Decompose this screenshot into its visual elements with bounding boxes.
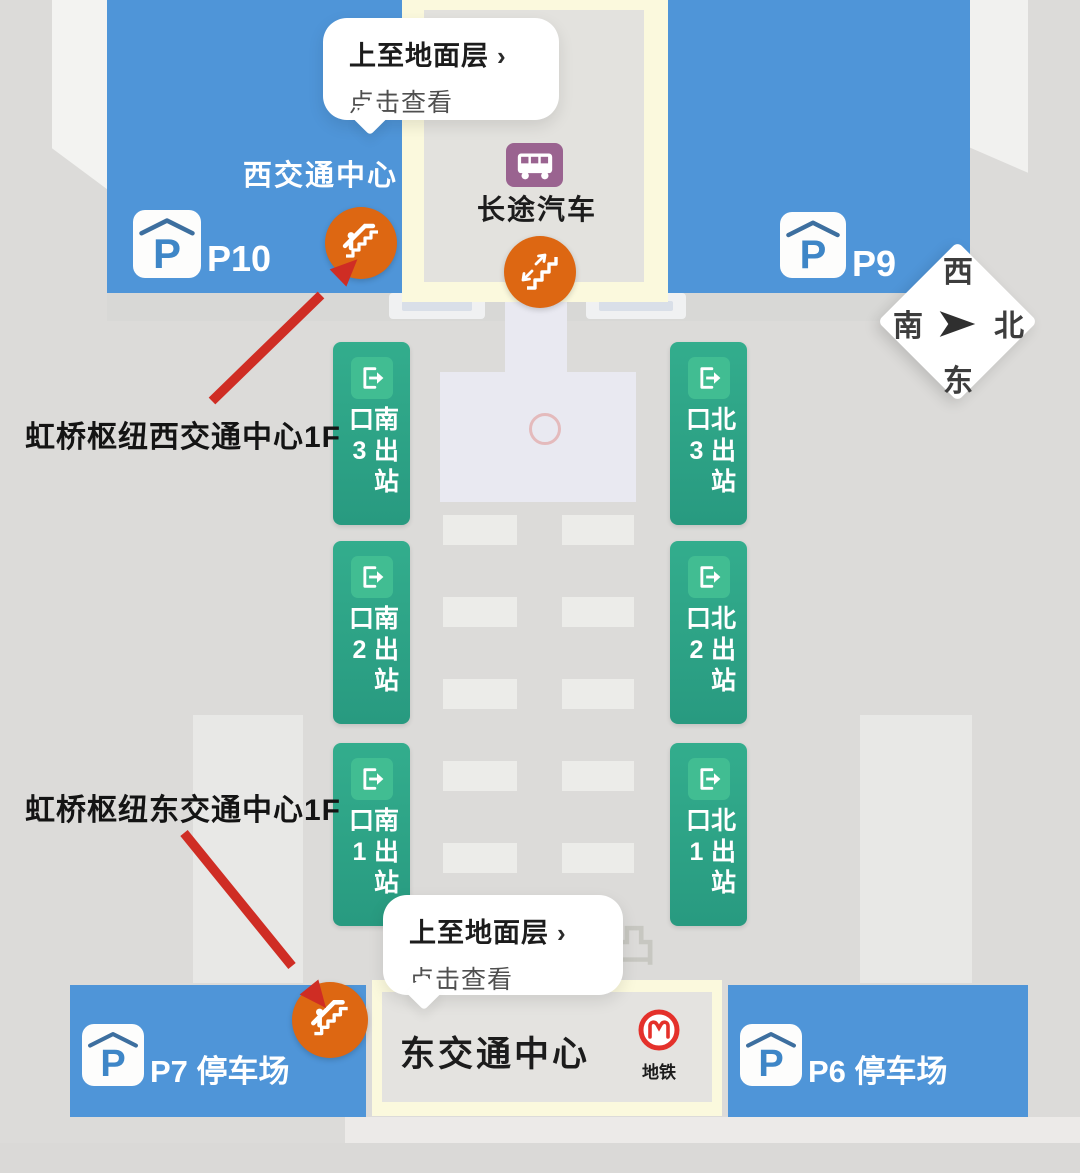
exit-label: 南出站口2	[347, 605, 397, 718]
bottom-light-band	[345, 1117, 1080, 1143]
p9-parking-icon: P	[780, 212, 846, 278]
exit-sign-north-1: 北出站口1	[670, 743, 747, 926]
compass-south: 南	[893, 301, 923, 345]
exit-icon	[688, 357, 730, 399]
building-leg-right	[860, 715, 972, 983]
p7-parking-icon: P	[82, 1024, 144, 1086]
compass-north: 北	[994, 301, 1024, 345]
metro-logo-icon	[637, 1008, 681, 1052]
tooltip-ground-floor-bottom[interactable]: 上至地面层› 点击查看	[383, 895, 623, 995]
platform-rows-left	[443, 515, 517, 915]
metro-ghost-ring-icon	[529, 413, 561, 445]
exit-icon	[351, 556, 393, 598]
exit-sign-north-3: 北出站口3	[670, 342, 747, 525]
exit-sign-south-2: 南出站口2	[333, 541, 410, 724]
parking-p-letter: P	[758, 1045, 783, 1083]
east-escalator-icon[interactable]	[292, 982, 368, 1058]
bottom-strip	[0, 1143, 1080, 1173]
hongqiao-hub-floor-map: 西交通中心 P P10 长途汽车	[0, 0, 1080, 1173]
annotation-east-center: 虹桥枢纽东交通中心1F	[25, 785, 341, 829]
ramp-shape-left	[52, 0, 107, 195]
p10-parking-icon: P	[133, 210, 201, 278]
compass-east: 东	[943, 356, 973, 400]
stairs-marker-icon[interactable]	[504, 236, 576, 308]
exit-sign-north-2: 北出站口2	[670, 541, 747, 724]
exit-label: 北出站口2	[684, 605, 734, 718]
west-center-label: 西交通中心	[238, 152, 398, 194]
station-hall-block	[440, 372, 636, 502]
p10-label: P10	[207, 238, 271, 280]
compass-west: 西	[943, 247, 973, 291]
chevron-right-icon: ›	[557, 918, 567, 948]
platform-rows-right	[562, 515, 634, 915]
compass: 西 南 北 东	[878, 242, 1038, 402]
p7-label: P7 停车场	[150, 1046, 290, 1091]
compass-arrow-icon	[938, 310, 978, 338]
exit-label: 北出站口3	[684, 406, 734, 519]
exit-sign-south-3: 南出站口3	[333, 342, 410, 525]
west-escalator-icon[interactable]	[325, 207, 397, 279]
ramp-shape-right	[970, 0, 1028, 180]
tooltip-ground-floor-top[interactable]: 上至地面层› 点击查看	[323, 18, 559, 120]
exit-icon	[688, 758, 730, 800]
exit-label: 北出站口1	[684, 807, 734, 920]
exit-icon	[351, 758, 393, 800]
exit-icon	[688, 556, 730, 598]
metro-label: 地铁	[636, 1058, 682, 1083]
chevron-right-icon: ›	[497, 41, 507, 71]
east-center-label: 东交通中心	[400, 1026, 590, 1077]
building-leg-left	[193, 715, 303, 983]
parking-p-letter: P	[153, 233, 181, 275]
p6-label: P6 停车场	[808, 1046, 948, 1091]
long-distance-bus-label: 长途汽车	[462, 188, 612, 228]
p6-parking-icon: P	[740, 1024, 802, 1086]
tooltip-action-label: 上至地面层	[349, 41, 489, 71]
tooltip-action-label: 上至地面层	[409, 918, 549, 948]
exit-icon	[351, 357, 393, 399]
parking-p-letter: P	[800, 235, 827, 275]
parking-p-letter: P	[100, 1045, 125, 1083]
exit-label: 南出站口3	[347, 406, 397, 519]
long-distance-bus-icon	[506, 143, 563, 187]
annotation-west-center: 虹桥枢纽西交通中心1F	[25, 412, 341, 456]
